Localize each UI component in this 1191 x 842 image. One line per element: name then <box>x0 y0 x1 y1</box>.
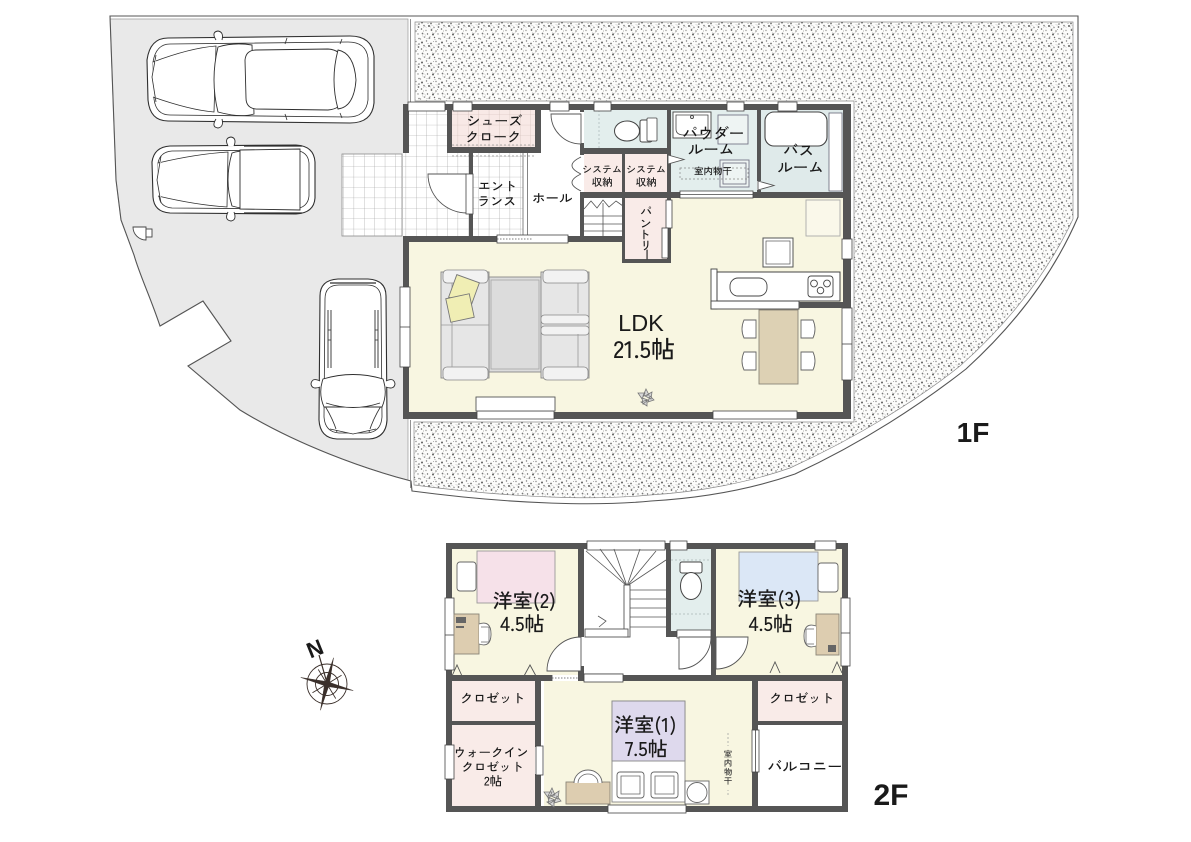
svg-text:2F: 2F <box>873 779 908 812</box>
svg-text:LDK: LDK <box>618 310 664 336</box>
svg-text:1F: 1F <box>957 417 990 448</box>
